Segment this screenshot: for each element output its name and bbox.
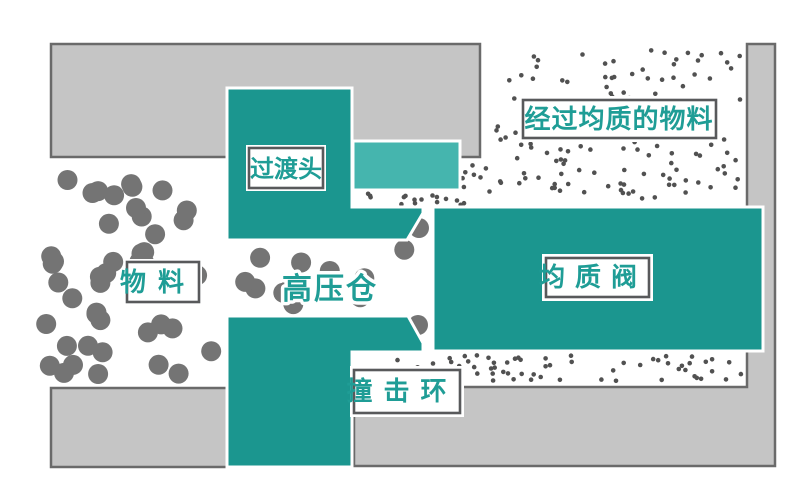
big-particle-dot — [62, 288, 82, 308]
small-particle-dot — [674, 57, 679, 62]
big-particle-dot — [99, 214, 119, 234]
housing-block-bottom-left — [51, 388, 227, 467]
big-particle-dot — [153, 180, 173, 200]
small-particle-dot — [604, 85, 609, 90]
small-particle-dot — [664, 354, 669, 359]
transition-head-label: 过渡头 — [246, 145, 326, 191]
small-particle-dot — [513, 130, 518, 135]
small-particle-dot — [536, 175, 541, 180]
small-particle-dot — [466, 359, 471, 364]
small-particle-dot — [683, 368, 688, 373]
small-particle-dot — [463, 170, 468, 175]
small-particle-dot — [622, 168, 627, 173]
small-particle-dot — [558, 188, 563, 193]
small-particle-dot — [725, 60, 730, 65]
small-particle-dot — [738, 97, 743, 102]
small-particle-dot — [519, 73, 524, 78]
big-particle-dot — [86, 304, 106, 324]
small-particle-dot — [725, 151, 730, 156]
small-particle-dot — [507, 78, 512, 83]
small-particle-dot — [566, 149, 571, 154]
small-particle-dot — [626, 191, 631, 196]
small-particle-dot — [435, 195, 440, 200]
big-particle-dot — [145, 224, 165, 244]
small-particle-dot — [733, 158, 738, 163]
small-particle-dot — [672, 62, 677, 67]
small-particle-dot — [499, 181, 504, 186]
small-particle-dot — [550, 186, 555, 191]
big-particle-dot — [41, 246, 61, 266]
big-particle-dot — [126, 198, 146, 218]
small-particle-dot — [478, 175, 483, 180]
small-particle-dot — [670, 151, 675, 156]
small-particle-dot — [671, 75, 676, 80]
small-particle-dot — [552, 182, 557, 187]
small-particle-dot — [475, 371, 480, 376]
small-particle-dot — [669, 161, 674, 166]
small-particle-dot — [569, 353, 574, 358]
small-particle-dot — [463, 354, 468, 359]
small-particle-dot — [419, 197, 424, 202]
small-particle-dot — [716, 167, 721, 172]
small-particle-dot — [649, 48, 654, 53]
small-particle-dot — [672, 183, 677, 188]
small-particle-dot — [487, 189, 492, 194]
small-particle-dot — [710, 369, 715, 374]
small-particle-dot — [531, 76, 536, 81]
small-particle-dot — [704, 360, 709, 365]
small-particle-dot — [621, 146, 626, 151]
label-text: 经过均质的物料 — [524, 104, 713, 135]
big-particle-dot — [394, 240, 414, 260]
small-particle-dot — [635, 147, 640, 152]
big-particle-dot — [138, 322, 158, 342]
small-particle-dot — [708, 185, 713, 190]
small-particle-dot — [484, 166, 489, 171]
small-particle-dot — [699, 53, 704, 58]
big-particle-dot — [40, 356, 60, 376]
small-particle-dot — [486, 356, 491, 361]
small-particle-dot — [503, 135, 508, 140]
small-particle-dot — [661, 173, 666, 178]
small-particle-dot — [578, 144, 583, 149]
small-particle-dot — [548, 363, 553, 368]
material-label: 物料 — [120, 259, 202, 305]
small-particle-dot — [619, 188, 624, 193]
small-particle-dot — [528, 142, 533, 147]
small-particle-dot — [554, 159, 559, 164]
small-particle-dot — [496, 124, 501, 129]
impact-ring-label: 撞击环 — [346, 366, 464, 417]
small-particle-dot — [403, 194, 408, 199]
small-particle-dot — [642, 172, 647, 177]
small-particle-dot — [538, 375, 543, 380]
small-particle-dot — [558, 147, 563, 152]
small-particle-dot — [566, 182, 571, 187]
small-particle-dot — [532, 54, 537, 59]
small-particle-dot — [519, 372, 524, 377]
big-particle-dot — [36, 314, 56, 334]
small-particle-dot — [640, 196, 645, 201]
big-particle-dot — [90, 273, 110, 293]
small-particle-dot — [618, 181, 623, 186]
big-particle-dot — [149, 355, 169, 375]
small-particle-dot — [692, 72, 697, 77]
small-particle-dot — [603, 61, 608, 66]
small-particle-dot — [737, 54, 742, 59]
small-particle-dot — [543, 364, 548, 369]
small-particle-dot — [413, 201, 418, 206]
small-particle-dot — [515, 156, 520, 161]
small-particle-dot — [522, 171, 527, 176]
small-particle-dot — [498, 137, 503, 142]
big-particle-dot — [291, 253, 311, 273]
big-particle-dot — [169, 364, 189, 384]
small-particle-dot — [656, 358, 661, 363]
big-particle-dot — [235, 272, 255, 292]
small-particle-dot — [662, 50, 667, 55]
label-text: 过渡头 — [250, 155, 322, 183]
small-particle-dot — [660, 77, 665, 82]
small-particle-dot — [666, 361, 671, 366]
small-particle-dot — [611, 59, 616, 64]
small-particle-dot — [505, 360, 510, 365]
big-particle-dot — [201, 341, 221, 361]
small-particle-dot — [651, 357, 656, 362]
big-particle-dot — [57, 336, 77, 356]
small-particle-dot — [621, 361, 626, 366]
small-particle-dot — [395, 358, 400, 363]
small-particle-dot — [513, 356, 518, 361]
small-particle-dot — [609, 91, 614, 96]
small-particle-dot — [599, 377, 604, 382]
big-particle-dot — [48, 273, 68, 293]
small-particle-dot — [710, 357, 715, 362]
small-particle-dot — [640, 67, 645, 72]
small-particle-dot — [606, 184, 611, 189]
homogenizer-diagram: 高压仓 过渡头 物料 撞击环 均质阀 经过均质的物料 — [0, 0, 800, 496]
small-particle-dot — [431, 361, 436, 366]
small-particle-dot — [565, 80, 570, 85]
small-particle-dot — [723, 171, 728, 176]
homogenized-material-label: 经过均质的物料 — [519, 96, 720, 142]
small-particle-dot — [531, 372, 536, 377]
homogenizing-valve-label: 均质阀 — [539, 254, 653, 301]
small-particle-dot — [724, 377, 729, 382]
small-particle-dot — [444, 197, 449, 202]
small-particle-dot — [683, 190, 688, 195]
small-particle-dot — [667, 176, 672, 181]
small-particle-dot — [435, 200, 440, 205]
small-particle-dot — [621, 90, 626, 95]
small-particle-dot — [653, 92, 658, 97]
small-particle-dot — [536, 58, 541, 63]
small-particle-dot — [569, 360, 574, 365]
small-particle-dot — [729, 66, 734, 71]
small-particle-dot — [659, 378, 664, 383]
small-particle-dot — [447, 356, 452, 361]
small-particle-dot — [611, 368, 616, 373]
small-particle-dot — [646, 76, 651, 81]
small-particle-dot — [492, 361, 497, 366]
small-particle-dot — [462, 185, 467, 190]
small-particle-dot — [512, 96, 517, 101]
small-particle-dot — [494, 128, 499, 133]
small-particle-dot — [470, 163, 475, 168]
small-particle-dot — [560, 78, 565, 83]
small-particle-dot — [475, 353, 480, 358]
valve-seat-part — [353, 141, 460, 190]
big-particle-dot — [250, 248, 270, 268]
small-particle-dot — [610, 76, 615, 81]
big-particle-dot — [177, 201, 197, 221]
small-particle-dot — [603, 75, 608, 80]
small-particle-dot — [517, 181, 522, 186]
high-pressure-chamber-label: 高压仓 — [282, 272, 378, 307]
small-particle-dot — [684, 178, 689, 183]
small-particle-dot — [695, 376, 700, 381]
small-particle-dot — [674, 168, 679, 173]
small-particle-dot — [582, 190, 587, 195]
small-particle-dot — [681, 84, 686, 89]
small-particle-dot — [518, 358, 523, 363]
small-particle-dot — [719, 51, 724, 56]
big-particle-dot — [58, 170, 78, 190]
label-text: 物料 — [120, 268, 196, 298]
small-particle-dot — [559, 172, 564, 177]
big-particle-dot — [93, 342, 113, 362]
big-particle-dot — [122, 177, 142, 197]
small-particle-dot — [534, 65, 539, 70]
small-particle-dot — [558, 378, 563, 383]
small-particle-dot — [472, 365, 477, 370]
small-particle-dot — [680, 364, 685, 369]
small-particle-dot — [722, 137, 727, 142]
small-particle-dot — [721, 164, 726, 169]
small-particle-dot — [455, 198, 460, 203]
small-particle-dot — [735, 177, 740, 182]
small-particle-dot — [506, 371, 511, 376]
small-particle-dot — [694, 152, 699, 157]
small-particle-dot — [733, 185, 738, 190]
small-particle-dot — [655, 144, 660, 149]
small-particle-dot — [511, 377, 516, 382]
small-particle-dot — [687, 361, 692, 366]
small-particle-dot — [577, 168, 582, 173]
small-particle-dot — [592, 170, 597, 175]
small-particle-dot — [559, 157, 564, 162]
small-particle-dot — [543, 356, 548, 361]
small-particle-dot — [462, 201, 467, 206]
small-particle-dot — [491, 378, 496, 383]
small-particle-dot — [501, 370, 506, 375]
small-particle-dot — [588, 147, 593, 152]
small-particle-dot — [696, 180, 701, 185]
big-particle-dot — [88, 364, 108, 384]
small-particle-dot — [519, 143, 524, 148]
small-particle-dot — [614, 379, 619, 384]
small-particle-dot — [696, 58, 701, 63]
small-particle-dot — [647, 153, 652, 158]
small-particle-dot — [709, 143, 714, 148]
small-particle-dot — [472, 173, 477, 178]
small-particle-dot — [631, 189, 636, 194]
small-particle-dot — [545, 151, 550, 156]
small-particle-dot — [653, 195, 658, 200]
small-particle-dot — [523, 176, 528, 181]
small-particle-dot — [430, 193, 435, 198]
small-particle-dot — [580, 52, 585, 57]
small-particle-dot — [489, 366, 494, 371]
small-particle-dot — [690, 354, 695, 359]
small-particle-dot — [638, 363, 643, 368]
label-text: 撞击环 — [346, 377, 457, 407]
small-particle-dot — [708, 76, 713, 81]
small-particle-dot — [529, 377, 534, 382]
small-particle-dot — [630, 72, 635, 77]
big-particle-dot — [88, 181, 108, 201]
small-particle-dot — [667, 183, 672, 188]
label-text: 均质阀 — [539, 263, 647, 293]
small-particle-dot — [686, 51, 691, 56]
small-particle-dot — [739, 372, 744, 377]
small-particle-dot — [490, 371, 495, 376]
small-particle-dot — [699, 377, 704, 382]
small-particle-dot — [727, 360, 732, 365]
small-particle-dot — [368, 194, 373, 199]
small-particle-dot — [563, 158, 568, 163]
